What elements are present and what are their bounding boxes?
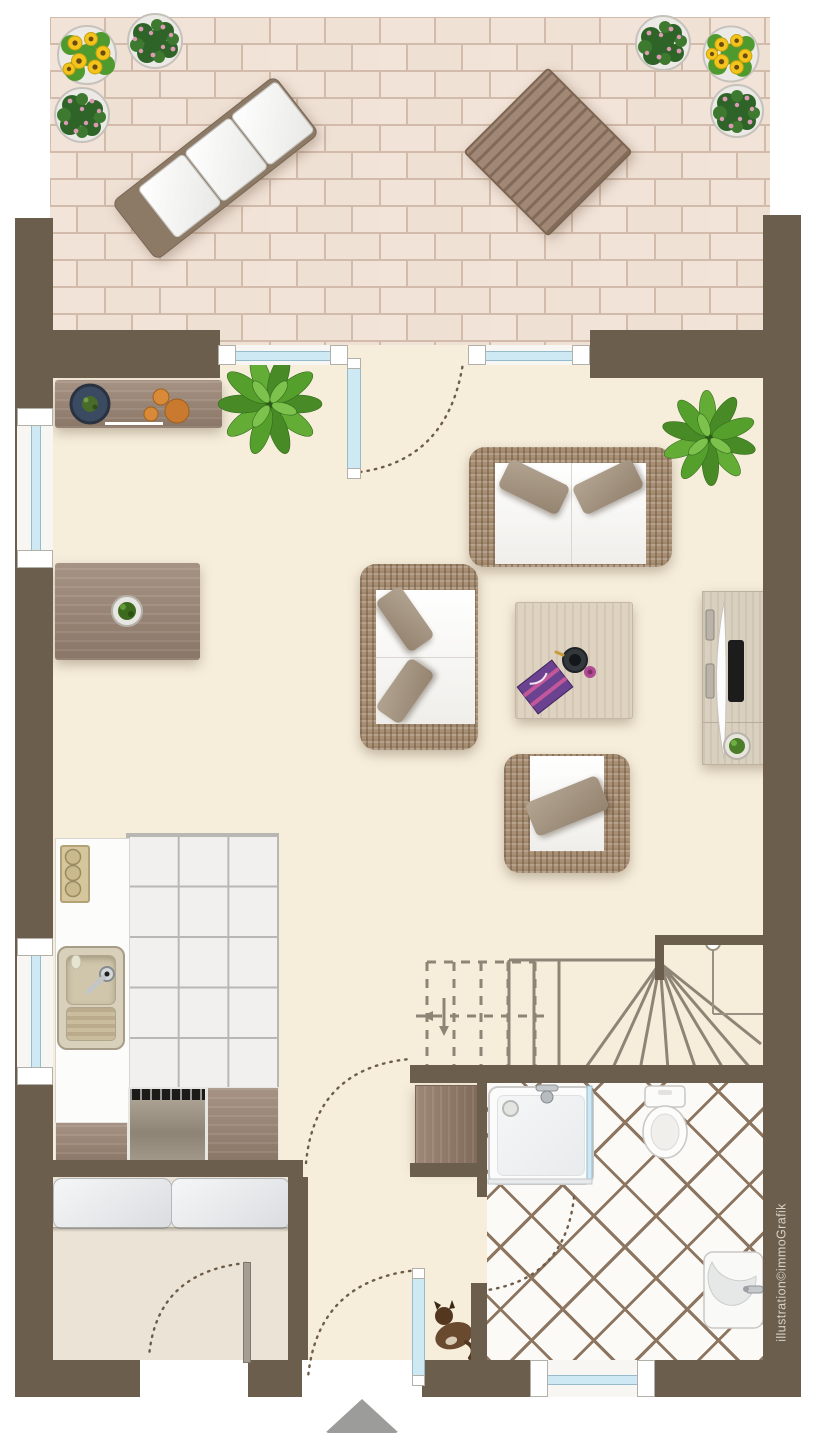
- window-frame-cap: [330, 345, 348, 365]
- terrace-door-arc: [360, 363, 463, 472]
- wall-hall-stub: [410, 1163, 477, 1177]
- wall-bath-west-upper: [477, 1083, 487, 1197]
- window-glass: [543, 1375, 642, 1385]
- magazine-icon: [517, 660, 573, 714]
- cooktop-burners-icon: [66, 850, 81, 897]
- window-frame-cap: [572, 345, 590, 365]
- wall-bottom-2: [248, 1360, 302, 1397]
- door-frame-cap: [347, 358, 361, 369]
- table-plant-icon: [112, 596, 142, 626]
- living-room-door-arc: [306, 1059, 410, 1163]
- fruit-bowl-icon: [144, 389, 189, 423]
- window-glass: [31, 953, 41, 1070]
- window-terrace-left: [218, 345, 348, 365]
- window-frame-cap: [530, 1360, 548, 1397]
- toilet-icon: [643, 1086, 687, 1158]
- door-swing-arcs: [149, 363, 574, 1378]
- flower-pot-sunflowers-icon: [703, 26, 758, 81]
- window-frame-cap: [17, 550, 53, 568]
- wall-bottom-3: [422, 1360, 530, 1397]
- wall-top-left: [15, 330, 220, 378]
- door-frame-cap: [412, 1375, 425, 1386]
- window-frame-cap: [468, 345, 486, 365]
- window-glass: [481, 351, 577, 361]
- wall-storage-east: [288, 1177, 308, 1360]
- window-glass: [231, 351, 335, 361]
- wall-kitchen-south: [50, 1160, 303, 1177]
- plan-overlay: [0, 0, 818, 1440]
- window-frame-cap: [218, 345, 236, 365]
- illustration-credit: illustration©immoGrafik: [775, 1183, 792, 1363]
- terrace-door-leaf: [347, 358, 361, 479]
- storage-door-arc: [149, 1263, 246, 1357]
- window-frame-cap: [17, 938, 53, 956]
- wall-bottom-4: [655, 1360, 763, 1397]
- flower-pot-geraniums-icon: [711, 85, 763, 137]
- wall-stairs-south: [410, 1065, 763, 1083]
- flower-pot-geraniums-icon: [128, 14, 182, 68]
- window-bathroom-south: [530, 1360, 655, 1397]
- potted-plant-icon: [218, 352, 322, 456]
- door-frame-cap: [412, 1268, 425, 1279]
- window-glass: [31, 423, 41, 553]
- remote-icon: [706, 610, 714, 640]
- bathroom-door-arc: [480, 1197, 574, 1291]
- shower-faucet-icon: [536, 1085, 558, 1103]
- stairs-lower-flight-dashed: [416, 962, 546, 1070]
- wall-stairs-newel-h: [655, 935, 763, 945]
- window-frame-cap: [17, 408, 53, 426]
- flower-pot-sunflowers-icon: [58, 26, 116, 84]
- potted-plant-icon: [661, 390, 758, 486]
- washbasin-icon: [704, 1252, 763, 1328]
- flower-pot-geraniums-icon: [55, 88, 109, 142]
- door-frame-cap: [347, 468, 361, 479]
- window-kitchen-west: [17, 938, 53, 1085]
- wall-left-exterior: [15, 218, 53, 1360]
- shower-glass-icon: [488, 1086, 592, 1184]
- window-frame-cap: [637, 1360, 655, 1397]
- tv-icon: [706, 601, 750, 759]
- wall-top-right: [590, 330, 763, 378]
- flower-pot-geraniums-icon: [636, 16, 690, 70]
- window-frame-cap: [17, 1067, 53, 1085]
- decor-bowl-icon: [71, 385, 109, 423]
- cat-icon: [432, 1300, 476, 1358]
- storage-door-leaf: [243, 1262, 251, 1363]
- wall-bottom-1: [15, 1360, 140, 1397]
- floor-plan-canvas: illustration©immoGrafik: [0, 0, 818, 1440]
- window-dining-west: [17, 408, 53, 568]
- wall-bath-west-lower: [471, 1283, 487, 1360]
- stairs-handrail: [706, 936, 763, 1014]
- front-door-leaf: [412, 1268, 425, 1386]
- remote-icon: [706, 664, 714, 698]
- window-terrace-right: [468, 345, 590, 365]
- front-door-arc: [308, 1270, 418, 1378]
- sink-faucet-icon: [71, 955, 114, 992]
